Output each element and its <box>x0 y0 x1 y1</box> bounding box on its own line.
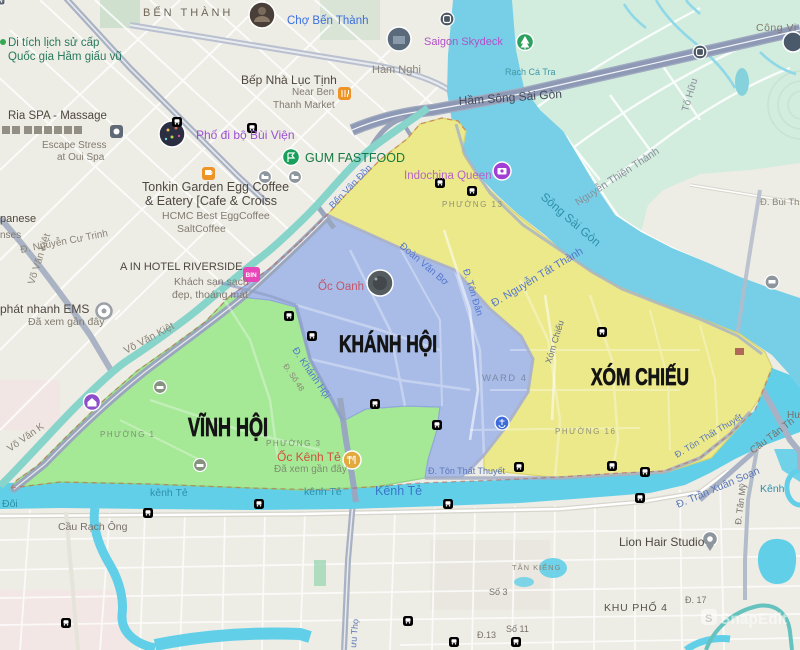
svg-text:S: S <box>705 613 712 625</box>
svg-text:Hàm Nghi: Hàm Nghi <box>372 64 421 76</box>
svg-text:KHU PHỐ 4: KHU PHỐ 4 <box>604 600 668 614</box>
svg-text:nses: nses <box>0 230 21 241</box>
svg-text:Quốc gia Hầm giấu vũ: Quốc gia Hầm giấu vũ <box>8 51 122 63</box>
svg-text:Indochina Queen: Indochina Queen <box>404 170 492 182</box>
svg-text:kênh Tẻ: kênh Tẻ <box>304 486 342 498</box>
svg-text:Rạch Cá Tra: Rạch Cá Tra <box>505 67 556 77</box>
svg-text:Lion Hair Studio: Lion Hair Studio <box>619 535 705 549</box>
svg-text:TÂN KIẾNG: TÂN KIẾNG <box>512 562 561 572</box>
svg-text:phát nhanh EMS: phát nhanh EMS <box>0 302 89 316</box>
svg-text:Ốc Kênh Tẻ: Ốc Kênh Tẻ <box>277 449 341 464</box>
svg-text:panese: panese <box>0 213 36 225</box>
svg-text:Đ. Tôn Thất Thuyết: Đ. Tôn Thất Thuyết <box>428 466 506 476</box>
svg-text:PHƯỜNG 16: PHƯỜNG 16 <box>555 427 616 436</box>
svg-text:XÓM CHIẾU: XÓM CHIẾU <box>591 363 689 391</box>
svg-text:KHÁNH HỘI: KHÁNH HỘI <box>339 330 437 358</box>
svg-text:Tonkin Garden Egg Coffee: Tonkin Garden Egg Coffee <box>142 180 289 194</box>
svg-text:Phố đi bộ Bùi Viện: Phố đi bộ Bùi Viện <box>196 128 295 142</box>
svg-text:Chợ Bến Thành: Chợ Bến Thành <box>287 15 369 27</box>
svg-text:Kênh: Kênh <box>760 483 785 495</box>
svg-text:Ốc Oanh: Ốc Oanh <box>318 279 364 293</box>
svg-text:PHƯỜNG 13: PHƯỜNG 13 <box>442 200 503 209</box>
svg-text:Thanh Market: Thanh Market <box>273 100 335 111</box>
svg-text:Di tích lịch sử cấp: Di tích lịch sử cấp <box>8 37 99 49</box>
svg-text:Cầu Rạch Ông: Cầu Rạch Ông <box>58 520 128 533</box>
svg-text:PHƯỜNG 1: PHƯỜNG 1 <box>100 430 155 439</box>
svg-text:VĨNH HỘI: VĨNH HỘI <box>188 412 268 442</box>
svg-text:HCMC Best EggCoffee: HCMC Best EggCoffee <box>162 210 270 222</box>
svg-text:SnapEdit: SnapEdit <box>720 611 787 628</box>
svg-text:Công Vi: Công Vi <box>756 22 797 34</box>
svg-text:GUM FASTFOOD: GUM FASTFOOD <box>305 151 405 165</box>
svg-text:Số 11: Số 11 <box>506 624 529 634</box>
svg-text:Saigon Skydeck: Saigon Skydeck <box>424 36 503 48</box>
svg-text:Đã xem gần đây: Đã xem gần đây <box>274 463 347 475</box>
svg-text:Bếp Nhà Lục Tịnh: Bếp Nhà Lục Tịnh <box>241 73 337 87</box>
svg-text:Hư: Hư <box>787 410 800 421</box>
svg-text:& Eatery [Cafe & Croiss: & Eatery [Cafe & Croiss <box>145 194 277 208</box>
svg-text:Khách sạn sạch: Khách sạn sạch <box>174 276 249 288</box>
svg-text:kênh Tẻ: kênh Tẻ <box>150 487 188 499</box>
svg-text:at Oui Spa: at Oui Spa <box>57 152 105 163</box>
svg-text:Đôi: Đôi <box>2 498 18 510</box>
svg-text:Kênh Tẻ: Kênh Tẻ <box>375 484 422 498</box>
svg-text:Escape Stress: Escape Stress <box>42 140 106 151</box>
svg-text:Đã xem gần đây: Đã xem gần đây <box>28 316 105 328</box>
svg-text:PHƯỜNG 3: PHƯỜNG 3 <box>266 439 321 448</box>
svg-text:WARD 4: WARD 4 <box>482 373 528 384</box>
svg-text:A IN HOTEL RIVERSIDE: A IN HOTEL RIVERSIDE <box>120 261 242 273</box>
svg-text:đẹp, thoáng mát: đẹp, thoáng mát <box>172 289 248 301</box>
svg-text:Số 3: Số 3 <box>489 587 508 597</box>
svg-text:SaltCoffee: SaltCoffee <box>177 223 226 235</box>
svg-text:Đ. Bùi Th: Đ. Bùi Th <box>760 197 799 208</box>
svg-text:BẾN THÀNH: BẾN THÀNH <box>143 6 233 19</box>
svg-text:Đ. 17: Đ. 17 <box>685 595 707 605</box>
svg-text:Near Ben: Near Ben <box>292 87 334 98</box>
svg-text:Ria SPA - Massage: Ria SPA - Massage <box>8 110 107 122</box>
svg-text:Đ.13: Đ.13 <box>477 630 496 640</box>
